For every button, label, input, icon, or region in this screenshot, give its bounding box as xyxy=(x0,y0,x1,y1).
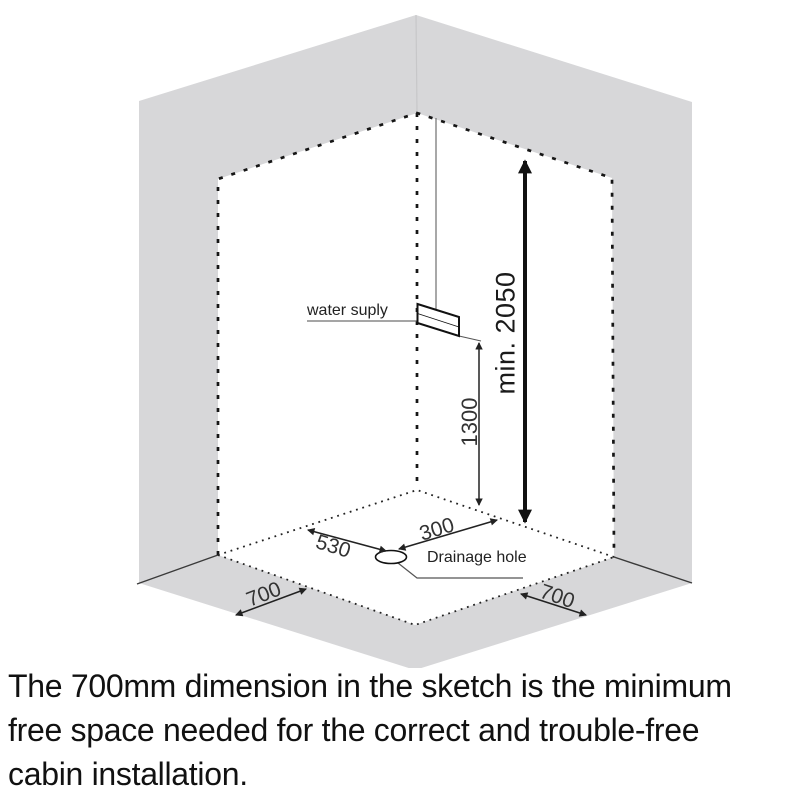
dim-label-min-2050: min. 2050 xyxy=(491,271,522,394)
caption-line-1: The 700mm dimension in the sketch is the… xyxy=(8,664,732,708)
caption-line-2: free space needed for the correct and tr… xyxy=(8,708,732,752)
dim-label-1300: 1300 xyxy=(457,398,483,447)
cabin-space-white xyxy=(218,113,614,625)
drainage-hole-label: Drainage hole xyxy=(427,549,527,567)
caption-text: The 700mm dimension in the sketch is the… xyxy=(8,664,732,796)
water-supply-label: water suply xyxy=(307,302,388,320)
installation-sketch: water suply Drainage hole min. 2050 1300… xyxy=(0,0,800,800)
drainage-hole-ellipse xyxy=(376,551,407,564)
sketch-canvas xyxy=(0,0,800,668)
caption-line-3: cabin installation. xyxy=(8,752,732,796)
